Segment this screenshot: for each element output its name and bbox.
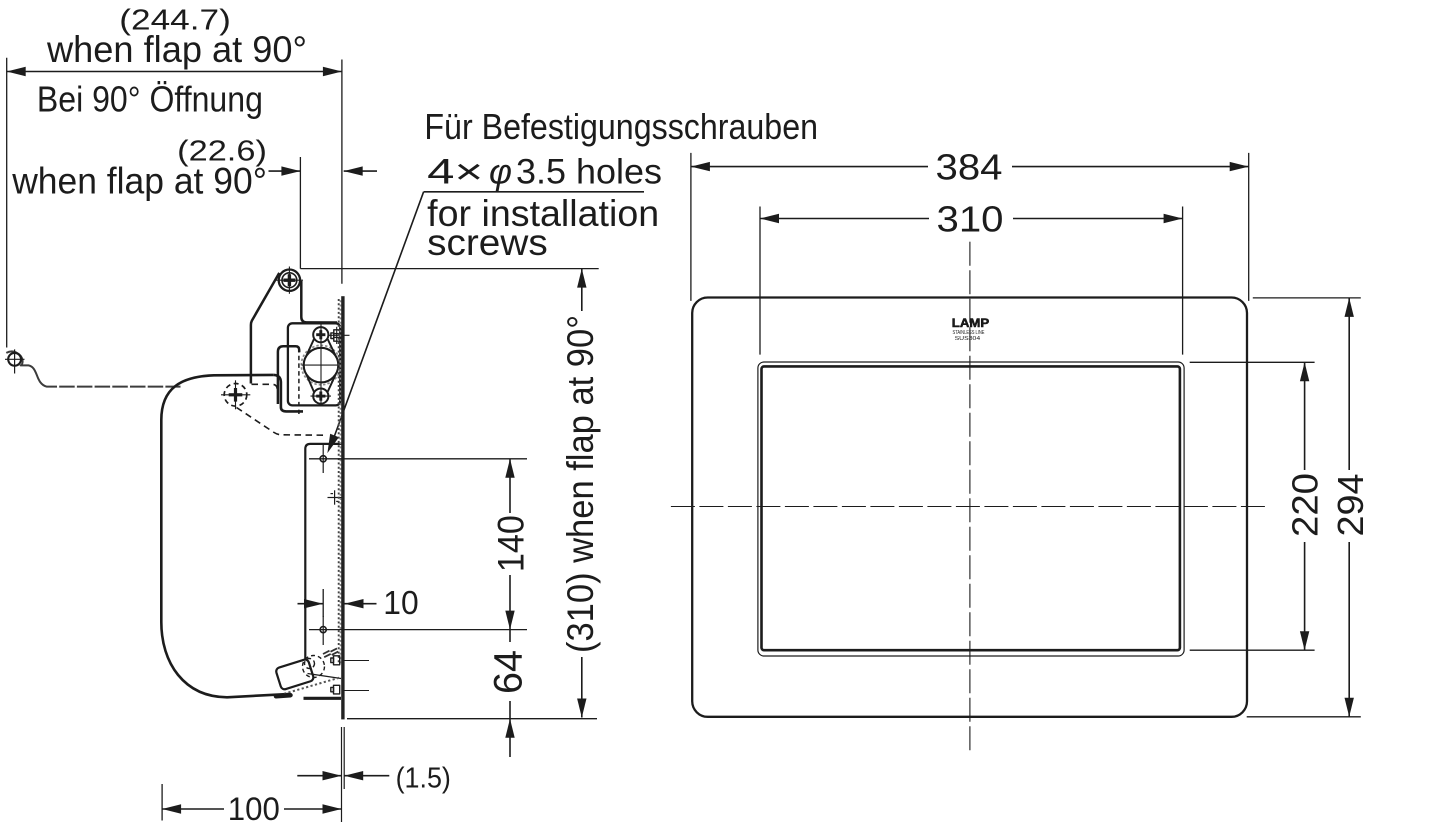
svg-text:294: 294 bbox=[1330, 474, 1371, 537]
svg-text:when flap at 90°: when flap at 90° bbox=[46, 29, 307, 70]
svg-text:Bei 90° Öffnung: Bei 90° Öffnung bbox=[37, 79, 263, 120]
svg-text:310: 310 bbox=[937, 199, 1004, 240]
svg-text:384: 384 bbox=[936, 147, 1003, 188]
svg-text:64: 64 bbox=[487, 650, 531, 694]
svg-text:φ: φ bbox=[489, 153, 512, 192]
svg-text:140: 140 bbox=[491, 515, 532, 572]
svg-text:220: 220 bbox=[1285, 473, 1326, 537]
svg-text:when flap at 90°: when flap at 90° bbox=[11, 161, 267, 202]
svg-text:LAMP: LAMP bbox=[952, 318, 990, 330]
svg-text:screws: screws bbox=[427, 222, 548, 263]
svg-text:SUS304: SUS304 bbox=[955, 336, 981, 342]
svg-text:Für Befestigungsschrauben: Für Befestigungsschrauben bbox=[424, 106, 818, 147]
svg-text:3.5 holes: 3.5 holes bbox=[516, 153, 662, 192]
svg-text:100: 100 bbox=[228, 791, 280, 827]
svg-text:(310) when flap at 90°: (310) when flap at 90° bbox=[560, 315, 601, 653]
svg-text:10: 10 bbox=[383, 584, 418, 621]
svg-text:(1.5): (1.5) bbox=[396, 763, 451, 795]
svg-text:4×: 4× bbox=[427, 153, 483, 192]
